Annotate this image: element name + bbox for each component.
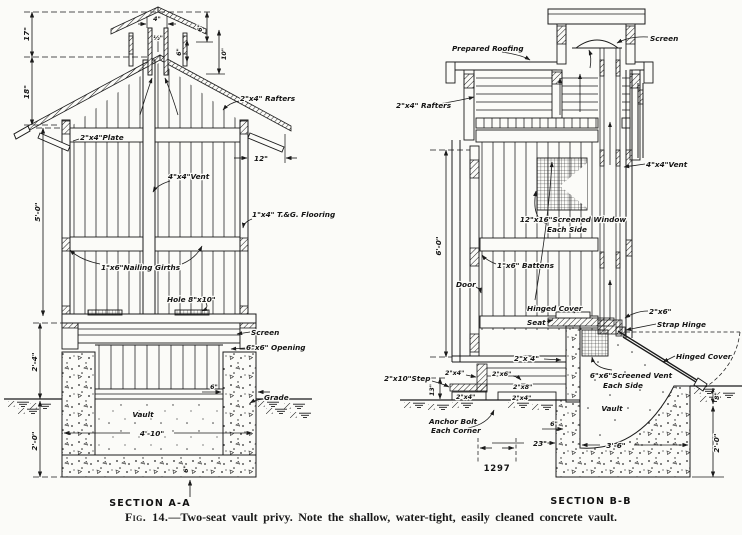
label-hinged-cover-open: Hinged Cover — [676, 352, 732, 361]
label-prepared-roofing: Prepared Roofing — [452, 44, 524, 53]
screened-vent-square — [582, 330, 608, 356]
label-window-1: 12"x16"Screened Window — [520, 215, 627, 224]
seat-hole-right — [175, 310, 209, 315]
label-2x4-riser: 2"x 4" — [514, 354, 539, 363]
section-a-drawing: 17" 18" 4" ½" 6" 6" 10" 2"x4" Rafters 2"… — [4, 7, 335, 509]
label-rafters-b: 2"x4" Rafters — [396, 101, 452, 110]
dim-2ft0-b: 2'-0" — [712, 433, 721, 452]
label-seat: Seat — [527, 318, 546, 327]
dim-10in: 10" — [221, 48, 228, 60]
rafter-band — [464, 70, 640, 160]
label-2x6-sill: 2"x6" — [649, 307, 672, 316]
dim-6ft: 6'-0" — [434, 236, 443, 255]
label-screen-b: Screen — [650, 34, 678, 43]
dim-4in-shaft: 4" — [153, 16, 161, 23]
section-a-title: SECTION A-A — [109, 498, 191, 509]
dim-4ft10: 4'-10" — [140, 429, 164, 438]
label-hole: Hole 8"x10" — [167, 295, 216, 304]
label-flooring: 1"x4" T.&G. Flooring — [252, 210, 335, 219]
dim-5ft: 5'-0" — [33, 202, 42, 221]
label-plate: 2"x4"Plate — [80, 133, 124, 142]
figure-caption-number: Fig. 14. — [125, 510, 168, 524]
label-opening: 6"x6" Opening — [246, 343, 306, 352]
cupola-b — [548, 9, 645, 64]
label-step: 2"x10"Step — [384, 374, 430, 383]
dim-6in-wall: 6" — [210, 384, 218, 391]
floor-and-seats — [62, 310, 256, 323]
figure-caption: Fig. 14.—Two-seat vault privy. Note the … — [125, 510, 617, 524]
label-anchor-2: Each Corner — [431, 426, 481, 435]
label-hinged-cover-seat: Hinged Cover — [527, 304, 583, 313]
dim-18in: 18" — [22, 85, 31, 99]
dim-23in: 23" — [533, 439, 547, 448]
label-2x4-a: 2"x4" — [445, 370, 464, 377]
dim-12in-eave: 12" — [254, 154, 268, 163]
strap-hinge-block — [616, 327, 625, 336]
screen-dome — [576, 40, 618, 48]
label-2x4-c: 2"x4" — [512, 395, 531, 402]
screened-window — [537, 158, 587, 210]
riser-column — [566, 326, 580, 402]
dim-13in-step: 13" — [429, 384, 436, 396]
step-board — [450, 384, 487, 391]
label-strap-hinge: Strap Hinge — [657, 320, 706, 329]
label-screened-vent-2: Each Side — [603, 381, 643, 390]
label-grade: Grade — [264, 393, 289, 402]
label-battens: 1"x6" Battens — [497, 261, 555, 270]
dim-6in-slab: 6" — [183, 465, 190, 473]
label-vault-b: Vault — [601, 404, 623, 413]
label-vent-a: 4"x4"Vent — [168, 172, 210, 181]
seat-board — [548, 318, 614, 326]
roof-b — [446, 62, 653, 83]
label-screen-a: Screen — [251, 328, 279, 337]
section-b-drawing: Prepared Roofing Screen 2"x4" Rafters 4"… — [384, 9, 742, 507]
section-b-title: SECTION B-B — [550, 496, 631, 507]
girt-band-b — [480, 238, 598, 251]
label-rafters-a: 2"x4" Rafters — [240, 94, 296, 103]
dim-17in: 17" — [22, 27, 31, 41]
plate-number: 1297 — [484, 464, 511, 474]
dim-2ft0-a: 2'-0" — [30, 431, 39, 450]
label-window-2: Each Side — [547, 225, 587, 234]
dim-2ft4: 2'-4" — [30, 352, 39, 371]
label-door: Door — [456, 280, 476, 289]
label-2x8-frame: 2"x8" — [513, 384, 532, 391]
privy-drawing: 17" 18" 4" ½" 6" 6" 10" 2"x4" Rafters 2"… — [0, 0, 742, 535]
dim-6in-cap: 6" — [197, 24, 204, 32]
label-vent-b: 4"x4"Vent — [646, 160, 688, 169]
dim-3ft6: 3'-6" — [606, 441, 625, 450]
label-screened-vent-1: 6"x6"Screened Vent — [590, 371, 673, 380]
seat-hole-left — [88, 310, 122, 315]
label-anchor-1: Anchor Bolt — [428, 417, 478, 426]
figure-page: 17" 18" 4" ½" 6" 6" 10" 2"x4" Rafters 2"… — [0, 0, 742, 535]
dim-6in-wall-b: 6" — [550, 421, 558, 428]
dim-half-inch: ½" — [153, 34, 163, 42]
dim-8in: 8" — [714, 392, 721, 400]
label-girths: 1"x6"Nailing Girths — [101, 263, 181, 272]
label-vault-a: Vault — [132, 410, 154, 419]
label-2x4-b: 2"x4" — [456, 394, 475, 401]
figure-caption-text: —Two-seat vault privy. Note the shallow,… — [167, 510, 617, 524]
label-2x6-frame: 2"x6" — [492, 371, 511, 378]
dim-6in-opening: 6" — [176, 48, 183, 56]
nailing-girth — [70, 237, 248, 251]
